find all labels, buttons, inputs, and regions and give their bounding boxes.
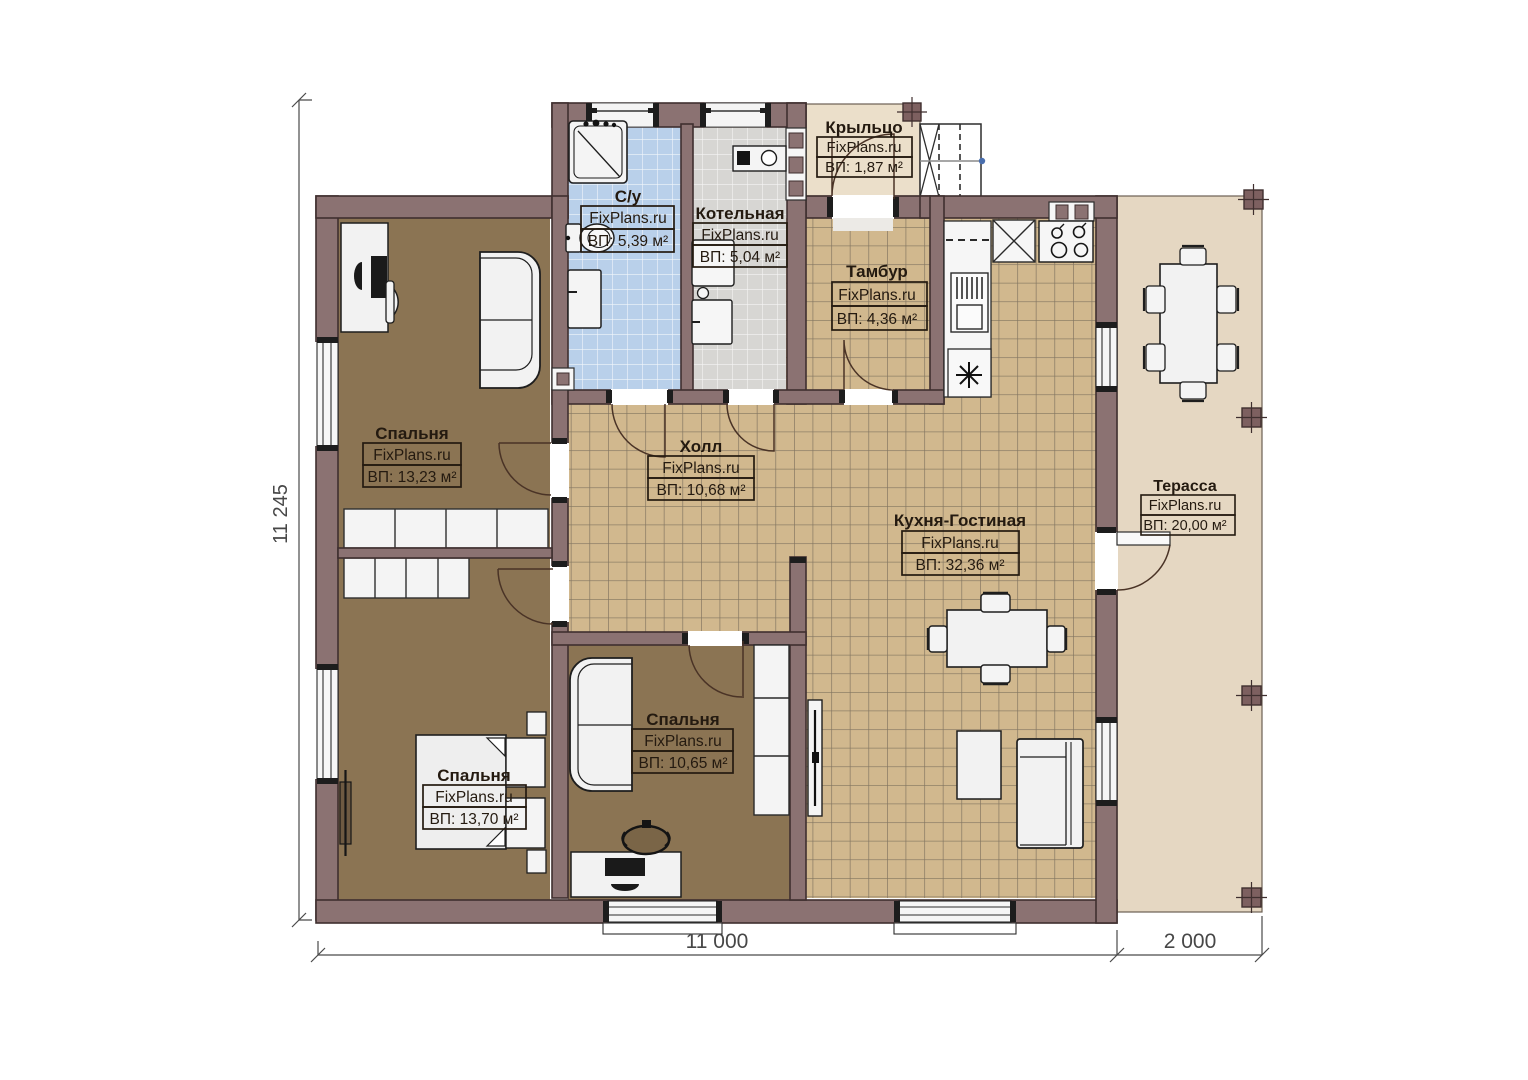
svg-text:Тамбур: Тамбур — [846, 262, 908, 281]
svg-text:С/у: С/у — [615, 187, 642, 206]
svg-text:Холл: Холл — [680, 437, 723, 456]
svg-text:FixPlans.ru: FixPlans.ru — [1149, 498, 1222, 514]
svg-text:ВП: 1,87 м²: ВП: 1,87 м² — [825, 159, 903, 176]
svg-text:FixPlans.ru: FixPlans.ru — [435, 789, 513, 806]
svg-text:Котельная: Котельная — [695, 204, 784, 223]
svg-text:Терасса: Терасса — [1153, 478, 1217, 495]
svg-text:Спальня: Спальня — [375, 424, 448, 443]
svg-text:ВП: 10,65 м²: ВП: 10,65 м² — [638, 755, 727, 772]
svg-text:FixPlans.ru: FixPlans.ru — [644, 733, 722, 750]
svg-text:FixPlans.ru: FixPlans.ru — [662, 460, 740, 477]
svg-text:ВП: 13,70 м²: ВП: 13,70 м² — [429, 811, 518, 828]
svg-text:11 245: 11 245 — [270, 484, 292, 544]
svg-text:ВП: 13,23 м²: ВП: 13,23 м² — [367, 469, 456, 486]
svg-text:ВП: 32,36 м²: ВП: 32,36 м² — [915, 557, 1004, 574]
svg-text:ВП: 20,00 м²: ВП: 20,00 м² — [1143, 518, 1226, 534]
svg-text:ВП: 4,36 м²: ВП: 4,36 м² — [837, 311, 917, 328]
svg-text:FixPlans.ru: FixPlans.ru — [838, 287, 916, 304]
svg-text:FixPlans.ru: FixPlans.ru — [826, 139, 901, 156]
svg-text:Крыльцо: Крыльцо — [825, 118, 902, 137]
svg-text:FixPlans.ru: FixPlans.ru — [373, 447, 451, 464]
svg-text:ВП: 5,04 м²: ВП: 5,04 м² — [700, 249, 780, 266]
svg-text:Кухня-Гостиная: Кухня-Гостиная — [894, 511, 1026, 530]
svg-text:FixPlans.ru: FixPlans.ru — [921, 535, 999, 552]
svg-text:Спальня: Спальня — [437, 766, 510, 785]
svg-text:2 000: 2 000 — [1164, 930, 1217, 953]
svg-text:FixPlans.ru: FixPlans.ru — [589, 210, 667, 227]
svg-text:ВП: 10,68 м²: ВП: 10,68 м² — [656, 482, 745, 499]
svg-text:FixPlans.ru: FixPlans.ru — [701, 227, 779, 244]
svg-text:Спальня: Спальня — [646, 710, 719, 729]
svg-text:11 000: 11 000 — [686, 930, 749, 953]
svg-text:ВП: 5,39 м²: ВП: 5,39 м² — [588, 233, 668, 250]
